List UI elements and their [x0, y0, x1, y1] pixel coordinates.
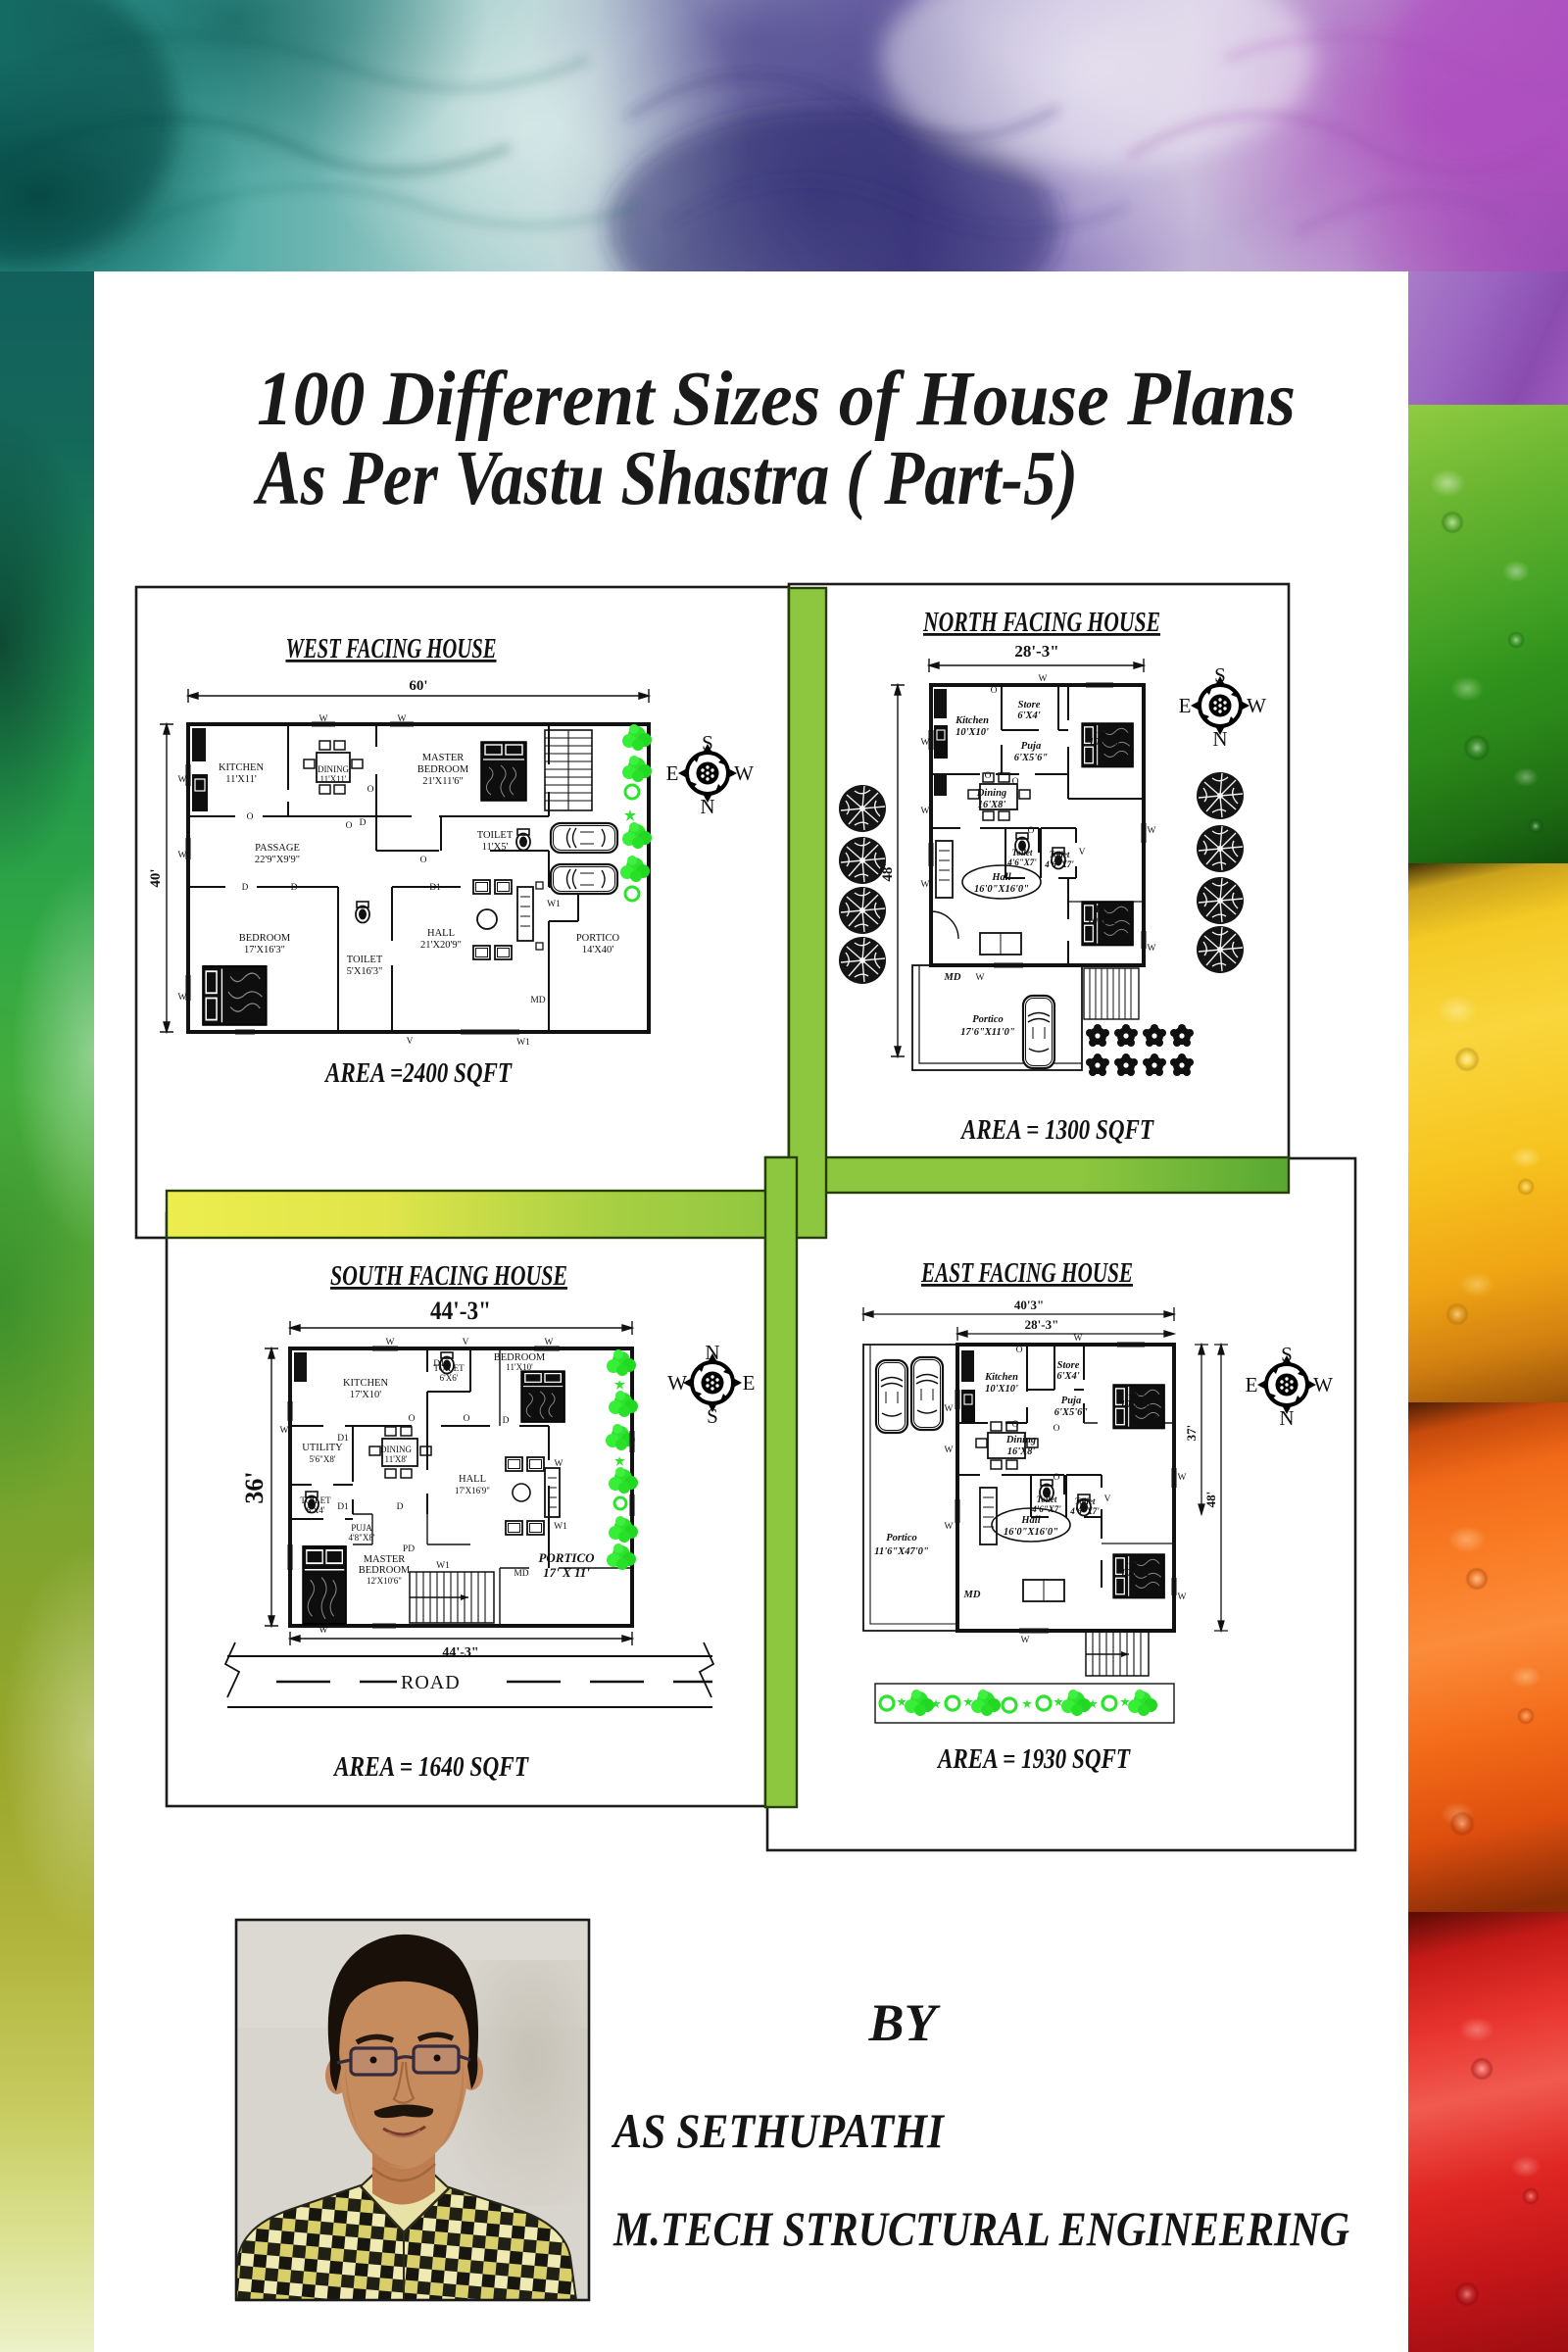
svg-text:W: W — [178, 775, 187, 785]
svg-text:6'X4': 6'X4' — [1017, 710, 1040, 721]
svg-text:D: D — [360, 818, 367, 828]
svg-text:6'X5'6": 6'X5'6" — [1014, 753, 1049, 763]
svg-text:44'-3": 44'-3" — [430, 1297, 491, 1325]
svg-text:17' X 11': 17' X 11' — [543, 1565, 590, 1580]
svg-text:Toilet: Toilet — [1037, 1494, 1057, 1504]
svg-text:5'6"X8': 5'6"X8' — [310, 1454, 336, 1464]
svg-text:40'3": 40'3" — [1014, 1298, 1044, 1312]
svg-text:AREA = 1930 SQFT: AREA = 1930 SQFT — [936, 1743, 1131, 1775]
svg-text:W: W — [976, 973, 985, 983]
svg-text:4'8"X8': 4'8"X8' — [349, 1533, 375, 1543]
svg-text:W: W — [319, 1626, 328, 1636]
svg-text:11'X5': 11'X5' — [482, 842, 509, 853]
svg-text:12'X10'6": 12'X10'6" — [367, 1576, 402, 1586]
svg-text:28'-3": 28'-3" — [1014, 642, 1058, 661]
svg-text:17'X16'3": 17'X16'3" — [244, 945, 285, 955]
svg-text:N: N — [705, 1341, 719, 1364]
svg-text:6'X4': 6'X4' — [1056, 1371, 1079, 1382]
svg-text:M.TECH STRUCTURAL ENGINEERING: M.TECH STRUCTURAL ENGINEERING — [612, 2201, 1349, 2256]
svg-text:44'-3": 44'-3" — [442, 1645, 478, 1660]
svg-text:MASTER: MASTER — [364, 1554, 406, 1565]
svg-text:N: N — [1212, 727, 1227, 751]
svg-text:W: W — [1178, 1592, 1187, 1602]
svg-text:S: S — [1281, 1343, 1293, 1366]
svg-text:O: O — [991, 686, 998, 696]
svg-text:10'X11': 10'X11' — [1120, 1568, 1152, 1579]
svg-text:D: D — [242, 882, 249, 892]
svg-text:E: E — [1246, 1373, 1258, 1396]
svg-text:11'X10': 11'X10' — [506, 1362, 533, 1372]
svg-text:11'X8': 11'X8' — [385, 1454, 408, 1464]
svg-text:TOILET: TOILET — [477, 830, 514, 841]
svg-text:10'X16': 10'X16' — [1120, 1399, 1153, 1410]
svg-text:D1: D1 — [337, 1502, 349, 1512]
svg-text:O: O — [1016, 1346, 1023, 1355]
svg-text:10'X16': 10'X16' — [1089, 737, 1122, 748]
svg-text:N: N — [1279, 1406, 1294, 1430]
svg-text:E: E — [666, 761, 679, 785]
svg-text:O: O — [1012, 1420, 1019, 1430]
svg-text:W: W — [1178, 1473, 1187, 1483]
svg-text:BY: BY — [867, 1993, 941, 2052]
svg-text:10'X10': 10'X10' — [955, 727, 989, 738]
svg-text:16'X8': 16'X8' — [978, 800, 1006, 810]
svg-text:W: W — [178, 993, 187, 1003]
svg-text:AREA =2400 SQFT: AREA =2400 SQFT — [323, 1057, 513, 1089]
svg-text:AREA = 1640 SQFT: AREA = 1640 SQFT — [332, 1751, 529, 1783]
svg-text:10'X10': 10'X10' — [985, 1384, 1018, 1395]
svg-text:D1: D1 — [433, 1359, 445, 1369]
svg-text:O: O — [1053, 1473, 1060, 1483]
svg-text:Toilet: Toilet — [1050, 850, 1070, 859]
svg-text:EAST FACING HOUSE: EAST FACING HOUSE — [920, 1258, 1133, 1289]
svg-text:V: V — [1104, 1494, 1111, 1504]
svg-text:BEDROOM: BEDROOM — [239, 933, 291, 944]
svg-text:16'X8': 16'X8' — [1007, 1446, 1036, 1457]
svg-text:W: W — [1148, 826, 1156, 836]
svg-text:W1: W1 — [547, 900, 561, 909]
svg-text:O: O — [420, 856, 427, 865]
svg-text:MD: MD — [530, 996, 545, 1005]
svg-text:HALL: HALL — [459, 1474, 486, 1485]
svg-text:W: W — [734, 761, 754, 785]
svg-text:SOUTH FACING HOUSE: SOUTH FACING HOUSE — [330, 1261, 567, 1292]
svg-text:W: W — [945, 1522, 954, 1532]
svg-text:Portico: Portico — [886, 1533, 917, 1543]
svg-text:S: S — [702, 731, 713, 755]
svg-text:MD: MD — [963, 1590, 981, 1600]
svg-text:W: W — [1247, 694, 1266, 717]
svg-text:17'6"X11'0": 17'6"X11'0" — [960, 1027, 1015, 1038]
svg-text:Puja: Puja — [1061, 1396, 1081, 1406]
svg-text:S: S — [1214, 663, 1226, 687]
svg-text:D: D — [397, 1502, 404, 1512]
svg-text:AREA = 1300 SQFT: AREA = 1300 SQFT — [959, 1114, 1154, 1146]
svg-text:D: D — [291, 883, 298, 893]
svg-text:6'X4': 6'X4' — [307, 1505, 325, 1515]
svg-text:PUJA: PUJA — [351, 1523, 372, 1533]
svg-text:21'X11'6": 21'X11'6" — [422, 776, 464, 787]
svg-text:D: D — [503, 1416, 510, 1426]
svg-text:TOILET: TOILET — [300, 1495, 331, 1505]
svg-text:100 Different Sizes of House P: 100 Different Sizes of House Plans — [257, 357, 1296, 442]
svg-text:S: S — [707, 1404, 718, 1428]
svg-text:Dining: Dining — [976, 788, 1006, 799]
svg-text:O: O — [1012, 777, 1019, 787]
svg-text:N: N — [700, 795, 714, 818]
svg-text:14'X40': 14'X40' — [582, 945, 613, 955]
svg-text:MD: MD — [944, 972, 961, 983]
svg-text:PASSAGE: PASSAGE — [255, 843, 300, 854]
svg-text:Bed: Bed — [1097, 725, 1115, 736]
svg-text:MASTER: MASTER — [422, 753, 465, 763]
svg-text:DINING: DINING — [380, 1445, 412, 1454]
svg-text:W: W — [1313, 1373, 1333, 1396]
svg-text:ROAD: ROAD — [401, 1672, 461, 1693]
svg-text:DINING: DINING — [318, 764, 349, 774]
svg-text:PD: PD — [403, 1544, 415, 1554]
svg-text:Store: Store — [1018, 700, 1041, 710]
svg-text:O: O — [1028, 826, 1035, 836]
svg-text:W: W — [945, 1404, 954, 1414]
svg-text:TOILET: TOILET — [347, 955, 383, 965]
svg-text:4'6"X7': 4'6"X7' — [1044, 859, 1074, 869]
svg-text:Bed: Bed — [1128, 1388, 1147, 1398]
svg-text:Hall: Hall — [1020, 1515, 1040, 1526]
svg-text:BEDROOM: BEDROOM — [417, 764, 469, 775]
svg-text:W: W — [945, 1445, 954, 1455]
svg-text:W: W — [178, 851, 187, 860]
svg-text:W1: W1 — [554, 1522, 567, 1532]
svg-text:O: O — [409, 1414, 416, 1424]
svg-text:PORTICO: PORTICO — [538, 1550, 595, 1565]
svg-text:BEDROOM: BEDROOM — [359, 1565, 411, 1576]
svg-text:O: O — [458, 0, 465, 3]
svg-text:MD: MD — [514, 1569, 528, 1579]
svg-text:5'X16'3": 5'X16'3" — [347, 966, 383, 977]
svg-text:O: O — [464, 1414, 470, 1424]
svg-text:22'9"X9'9": 22'9"X9'9" — [255, 855, 300, 865]
svg-text:W: W — [921, 880, 930, 890]
svg-text:Dining: Dining — [1005, 1435, 1036, 1445]
svg-text:Bed: Bed — [1095, 905, 1113, 915]
svg-text:Toilet: Toilet — [1012, 848, 1033, 857]
svg-text:AS SETHUPATHI: AS SETHUPATHI — [611, 2103, 945, 2158]
svg-text:Kitchen: Kitchen — [955, 715, 989, 726]
svg-text:W: W — [555, 1459, 563, 1469]
svg-text:4'6"X7': 4'6"X7' — [1069, 1506, 1100, 1516]
svg-text:W: W — [1148, 944, 1156, 954]
svg-text:PORTICO: PORTICO — [576, 933, 620, 944]
svg-text:37': 37' — [1184, 1425, 1199, 1442]
svg-text:W: W — [921, 738, 930, 748]
svg-text:V: V — [1079, 848, 1086, 857]
svg-text:W: W — [921, 807, 930, 816]
svg-text:W1: W1 — [436, 1561, 450, 1571]
svg-text:W: W — [1074, 1334, 1083, 1344]
svg-text:36': 36' — [240, 1471, 269, 1503]
svg-text:UTILITY: UTILITY — [302, 1443, 343, 1453]
svg-text:11'X11': 11'X11' — [319, 774, 346, 784]
svg-text:V: V — [463, 1338, 469, 1347]
svg-text:KITCHEN: KITCHEN — [219, 762, 264, 773]
svg-text:Puja: Puja — [1021, 741, 1041, 752]
svg-text:Hall: Hall — [991, 872, 1010, 883]
svg-text:O: O — [1053, 1424, 1060, 1434]
svg-text:Kitchen: Kitchen — [984, 1372, 1018, 1383]
svg-text:Store: Store — [1057, 1360, 1080, 1371]
svg-text:HALL: HALL — [427, 928, 455, 939]
svg-text:16'0"X16'0": 16'0"X16'0" — [974, 884, 1029, 895]
svg-text:40': 40' — [148, 868, 164, 887]
svg-text:W: W — [1039, 674, 1048, 684]
svg-text:21'X20'9": 21'X20'9" — [420, 940, 462, 951]
svg-text:10'X11': 10'X11' — [1087, 916, 1119, 927]
svg-text:17'X10': 17'X10' — [350, 1390, 381, 1400]
svg-text:E: E — [1179, 694, 1192, 717]
svg-text:O: O — [367, 785, 374, 795]
svg-text:V: V — [407, 1037, 414, 1047]
svg-text:As Per Vastu Shastra ( Part-5): As Per Vastu Shastra ( Part-5) — [253, 436, 1078, 521]
svg-text:D1: D1 — [337, 1434, 349, 1444]
svg-text:D1: D1 — [429, 883, 441, 893]
svg-text:Toilet: Toilet — [1075, 1496, 1096, 1506]
svg-text:48': 48' — [1203, 1492, 1218, 1508]
svg-text:16'0"X16'0": 16'0"X16'0" — [1004, 1527, 1058, 1538]
svg-text:W1: W1 — [516, 1038, 530, 1048]
svg-text:O: O — [247, 812, 254, 822]
svg-text:W: W — [1021, 1636, 1030, 1645]
svg-text:KITCHEN: KITCHEN — [343, 1378, 388, 1389]
svg-text:W: W — [667, 1371, 687, 1395]
svg-text:11'X11': 11'X11' — [225, 774, 257, 785]
svg-text:E: E — [743, 1371, 756, 1395]
svg-text:11'6"X47'0": 11'6"X47'0" — [874, 1546, 929, 1557]
svg-text:6'X6': 6'X6' — [440, 1373, 459, 1383]
svg-text:O: O — [985, 771, 992, 781]
svg-text:W: W — [280, 1426, 289, 1436]
svg-text:O: O — [346, 821, 353, 831]
svg-text:17'X16'9": 17'X16'9" — [455, 1486, 490, 1495]
svg-text:Portico: Portico — [972, 1014, 1004, 1025]
svg-text:4'6"X7': 4'6"X7' — [1006, 857, 1037, 867]
svg-text:WEST FACING HOUSE: WEST FACING HOUSE — [286, 634, 497, 664]
svg-text:Bed: Bed — [1128, 1556, 1147, 1567]
svg-text:4'6"X7': 4'6"X7' — [1031, 1504, 1061, 1514]
svg-text:60': 60' — [409, 678, 427, 694]
svg-text:28'-3": 28'-3" — [1025, 1317, 1059, 1332]
svg-text:NORTH FACING HOUSE: NORTH FACING HOUSE — [922, 608, 1160, 638]
svg-text:6'X5'6": 6'X5'6" — [1054, 1407, 1089, 1418]
